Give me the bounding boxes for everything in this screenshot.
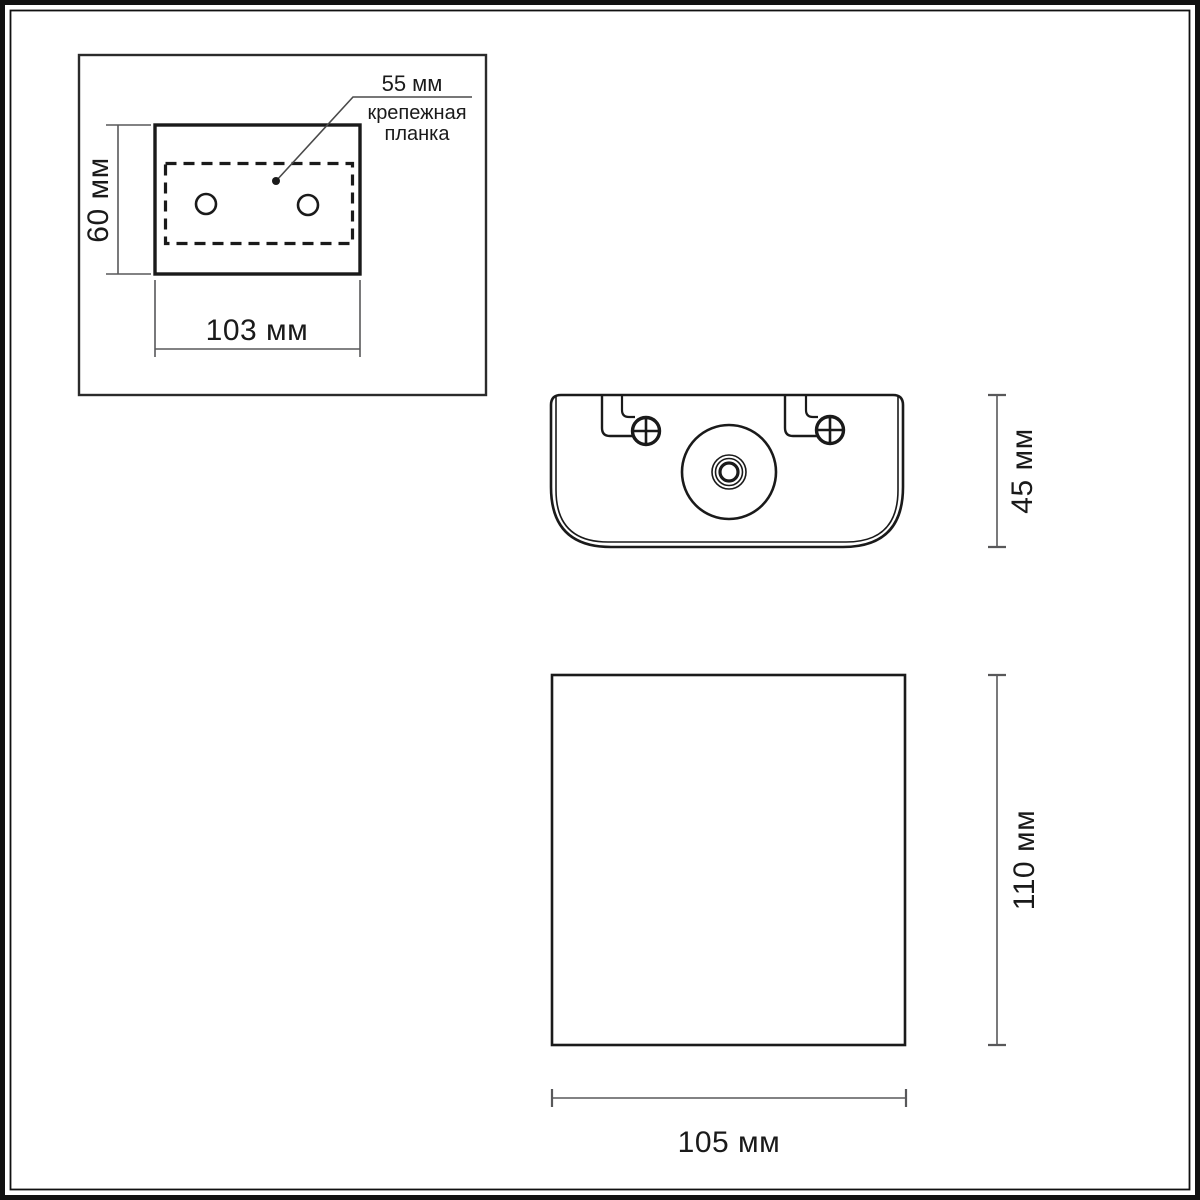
fixture-height-label: 110 мм xyxy=(1008,810,1041,910)
fixture-depth-label: 45 мм xyxy=(1006,428,1039,513)
dimension-fixture-width: 105 мм xyxy=(552,1089,906,1159)
mounting-hole-left xyxy=(196,194,216,214)
technical-drawing-page: 55 мм крепежная планка 60 мм 103 мм xyxy=(0,0,1200,1200)
dimension-fixture-height: 110 мм xyxy=(988,675,1041,1045)
fixture-width-label: 105 мм xyxy=(678,1126,781,1159)
cable-gland xyxy=(682,425,776,519)
cable-gland-center-hole xyxy=(720,463,738,481)
screw-right xyxy=(817,417,844,444)
plate-height-label: 60 мм xyxy=(82,157,115,242)
drawing-canvas: 55 мм крепежная планка 60 мм 103 мм xyxy=(0,0,1200,1200)
front-view-outline xyxy=(552,675,905,1045)
plate-outline xyxy=(155,125,360,274)
dimension-fixture-depth: 45 мм xyxy=(988,395,1039,547)
mounting-plate-callout-line1: крепежная xyxy=(367,102,466,124)
mounting-plate-panel: 55 мм крепежная планка 60 мм 103 мм xyxy=(79,55,486,395)
callout-leader-dot xyxy=(272,177,280,185)
fixture-front-view: 110 мм 105 мм xyxy=(552,675,1041,1159)
screw-left xyxy=(633,418,660,445)
mounting-hole-right xyxy=(298,195,318,215)
plate-width-label: 103 мм xyxy=(206,314,309,347)
mounting-plate-callout-line2: планка xyxy=(385,123,451,145)
fixture-top-view: 45 мм xyxy=(551,395,1039,547)
hole-spacing-label: 55 мм xyxy=(382,71,443,96)
